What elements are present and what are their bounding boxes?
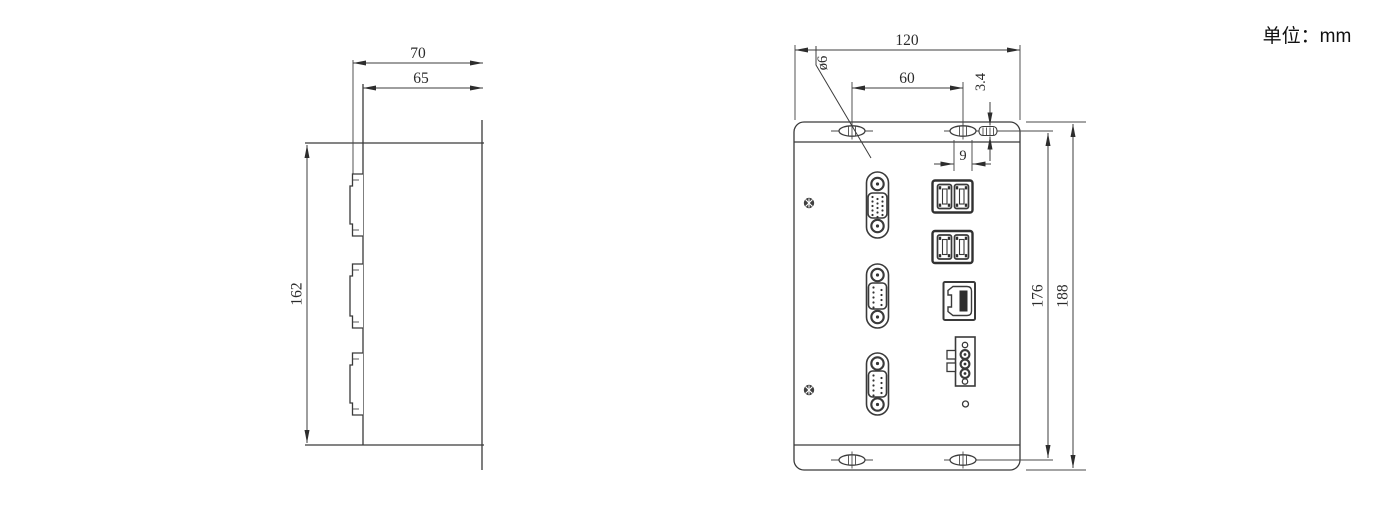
db-connector-profile — [350, 353, 363, 415]
dim-label-width: 120 — [895, 32, 919, 49]
front-bezel-outline — [794, 122, 1020, 470]
dim-label-depth-body: 65 — [413, 70, 429, 87]
front-view: 120 60 ø6 9 3.4 — [794, 32, 1086, 470]
panel-screw — [804, 385, 814, 395]
usb-ports — [933, 231, 973, 263]
side-view: 70 65 162 — [289, 45, 485, 470]
dim-label-depth-total: 70 — [410, 45, 426, 62]
dim-label-slot-pitch-y: 176 — [1030, 284, 1047, 308]
side-view-outline — [305, 60, 484, 470]
led-indicator — [963, 401, 969, 407]
panel-screw — [804, 198, 814, 208]
dim-label-slot-width: 3.4 — [973, 72, 989, 91]
dim-label-hole-diameter: ø6 — [815, 56, 831, 71]
dim-label-slot-length: 9 — [959, 148, 966, 164]
db-connector-profile — [350, 264, 363, 328]
dimension-slot-pitch-y: 176 — [1030, 133, 1049, 458]
dimension-height-body: 162 — [289, 145, 308, 443]
usb-ports — [933, 181, 973, 213]
db-connector-profile — [350, 174, 363, 236]
dim-label-height-body: 162 — [289, 282, 306, 305]
dimension-drawing: 70 65 162 — [0, 0, 1383, 515]
dimension-slot-pitch-x: 60 — [852, 70, 963, 125]
units-label: 单位：mm — [1263, 25, 1352, 47]
db9-port — [867, 353, 889, 415]
drawing-canvas: 70 65 162 — [0, 0, 1383, 515]
dimension-depth-body: 65 — [363, 70, 483, 88]
lan-port — [944, 282, 976, 320]
dim-label-height-total: 188 — [1055, 284, 1072, 308]
vga-port — [867, 172, 889, 238]
dim-label-slot-pitch-x: 60 — [899, 70, 915, 87]
db9-port — [867, 264, 889, 328]
dimension-depth-total: 70 — [353, 45, 483, 63]
